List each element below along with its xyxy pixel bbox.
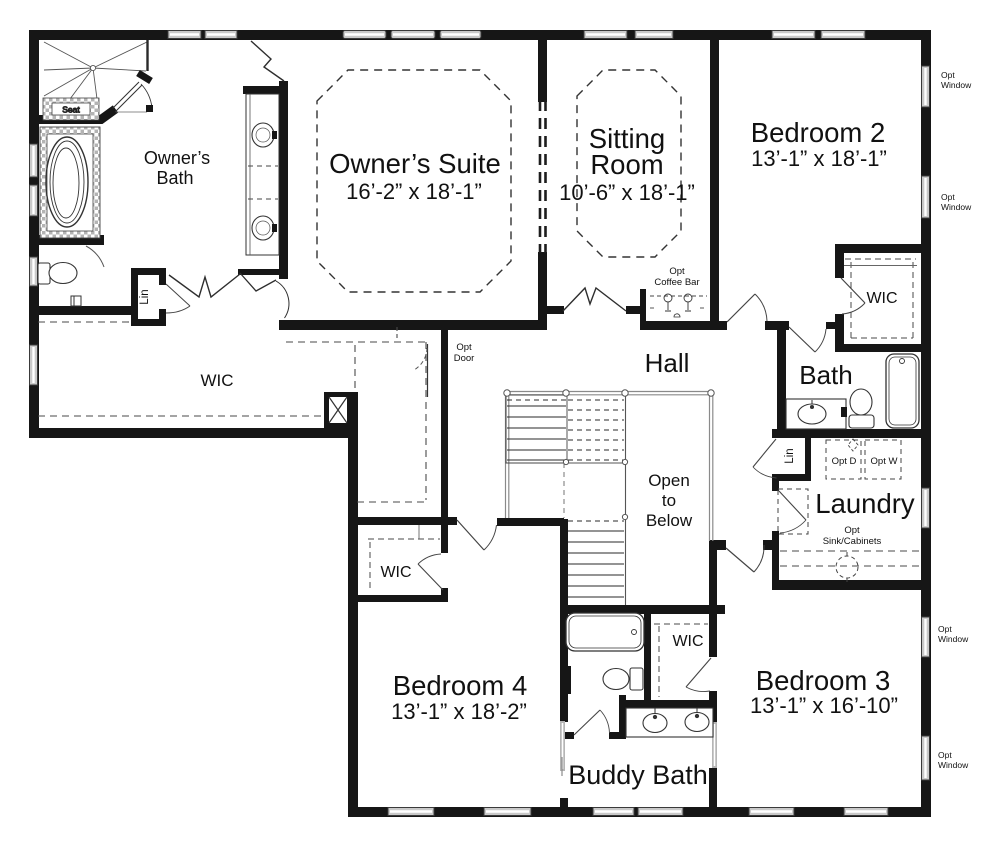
svg-text:13’-1” x 18’-1”: 13’-1” x 18’-1”	[751, 146, 887, 171]
svg-text:Window: Window	[938, 634, 969, 644]
svg-text:Lin: Lin	[784, 448, 796, 463]
svg-text:Coffee Bar: Coffee Bar	[654, 277, 699, 288]
svg-text:Window: Window	[938, 760, 969, 770]
svg-text:Opt: Opt	[938, 624, 952, 634]
svg-text:Opt: Opt	[669, 266, 685, 277]
svg-text:Opt: Opt	[941, 70, 955, 80]
svg-text:Seat: Seat	[62, 105, 80, 115]
svg-text:Laundry: Laundry	[815, 488, 915, 519]
svg-text:Opt: Opt	[844, 525, 860, 536]
svg-text:Room: Room	[590, 149, 663, 180]
svg-text:10’-6” x 18’-1”: 10’-6” x 18’-1”	[559, 180, 695, 205]
svg-text:Window: Window	[941, 202, 972, 212]
svg-text:Bath: Bath	[799, 360, 853, 390]
svg-text:Below: Below	[646, 511, 693, 530]
svg-text:Owner’s: Owner’s	[144, 148, 210, 168]
svg-text:Opt: Opt	[941, 192, 955, 202]
svg-text:Opt: Opt	[456, 342, 472, 353]
svg-text:13’-1” x 18’-2”: 13’-1” x 18’-2”	[391, 699, 527, 724]
svg-text:Bedroom 4: Bedroom 4	[393, 670, 528, 701]
svg-text:Bedroom 3: Bedroom 3	[756, 665, 891, 696]
svg-text:13’-1” x 16’-10”: 13’-1” x 16’-10”	[750, 693, 898, 718]
svg-text:Open: Open	[648, 471, 690, 490]
svg-text:Owner’s Suite: Owner’s Suite	[329, 148, 501, 179]
svg-text:to: to	[662, 491, 676, 510]
svg-text:Window: Window	[941, 80, 972, 90]
svg-text:Hall: Hall	[645, 348, 690, 378]
svg-text:Opt W: Opt W	[871, 456, 898, 467]
svg-text:Door: Door	[454, 353, 475, 364]
svg-text:Lin: Lin	[139, 289, 151, 304]
svg-text:16’-2” x 18’-1”: 16’-2” x 18’-1”	[346, 179, 482, 204]
svg-text:Bath: Bath	[156, 168, 193, 188]
svg-text:WIC: WIC	[380, 564, 411, 581]
svg-text:WIC: WIC	[672, 633, 703, 650]
svg-text:Opt D: Opt D	[832, 456, 857, 467]
svg-text:Buddy Bath: Buddy Bath	[568, 760, 708, 790]
svg-text:WIC: WIC	[866, 290, 897, 307]
svg-text:Opt: Opt	[938, 750, 952, 760]
svg-text:Bedroom 2: Bedroom 2	[751, 117, 886, 148]
svg-text:WIC: WIC	[200, 371, 233, 390]
svg-text:Sink/Cabinets: Sink/Cabinets	[823, 536, 882, 547]
